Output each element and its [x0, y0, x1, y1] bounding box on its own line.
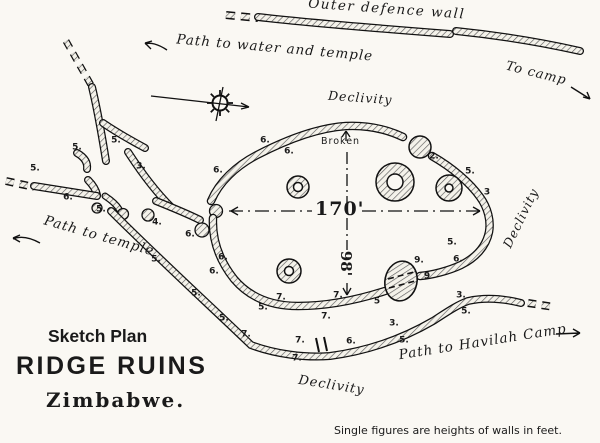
wall-height-label: 5.	[219, 315, 229, 324]
wall-height-label: 3.	[456, 292, 466, 301]
wall-height-label: 6.	[453, 256, 463, 265]
wall-height-label: 7.	[321, 313, 331, 322]
entrance-tick-marks	[316, 337, 327, 352]
wall-height-label: 5	[374, 298, 380, 307]
wall-height-label: 7.	[241, 331, 251, 340]
wall-height-label: 6.	[346, 338, 356, 347]
wall-height-label: 3.	[136, 163, 146, 172]
wall-height-label: 5.	[465, 168, 475, 177]
wall-height-label: 5.	[399, 337, 409, 346]
wall-height-label: 5.	[258, 304, 268, 313]
width-dimension-label: 170'	[315, 200, 364, 219]
wall-height-label: 4.	[152, 219, 162, 228]
path-to-temple-arrow	[13, 235, 40, 243]
wall-height-label: 5.	[72, 144, 82, 153]
wall-height-label: 5.	[461, 308, 471, 317]
wall-height-label: 7.	[295, 337, 305, 346]
compass-rose	[151, 87, 249, 121]
sketch-map: Outer defence wall Path to water and tem…	[0, 0, 600, 443]
height-dimension-label: 98'	[338, 251, 353, 276]
wall-height-label: 7.	[292, 355, 302, 364]
wall-height-label: 5.	[191, 290, 201, 299]
wall-height-label: 7.	[333, 292, 343, 301]
wall-height-label: 3	[484, 189, 490, 198]
wall-height-label: 3.	[389, 320, 399, 329]
broken-wall-label: Broken	[321, 137, 360, 147]
wall-height-label: 5.	[111, 137, 121, 146]
wall-height-label: 6.	[209, 268, 219, 277]
wall-height-label: 5.	[447, 239, 457, 248]
wall-height-label: 6.	[218, 254, 228, 263]
wall-height-label: 5.	[30, 165, 40, 174]
wall-height-label: 5.	[96, 206, 106, 215]
wall-height-label: 9.	[414, 257, 424, 266]
wall-height-label: 6.	[63, 194, 73, 203]
title-sketch-plan: Sketch Plan	[48, 328, 147, 346]
northeast-round-tower	[409, 136, 431, 158]
wall-height-label: 6.	[185, 231, 195, 240]
path-to-water-arrow	[145, 41, 167, 50]
wall-height-label: 7.	[276, 294, 286, 303]
footnote-legend: Single figures are heights of walls in f…	[334, 425, 562, 436]
wall-bump	[195, 223, 209, 237]
hut-circles	[277, 163, 462, 283]
wall-height-label: 6.	[213, 167, 223, 176]
wall-height-label: 2.	[429, 153, 439, 162]
wall-height-label: 5.	[151, 256, 161, 265]
title-zimbabwe: Zimbabwe.	[46, 390, 185, 410]
title-ridge-ruins: RIDGE RUINS	[16, 354, 207, 379]
to-camp-arrow	[571, 87, 590, 99]
wall-height-label: 6.	[284, 148, 294, 157]
wall-height-label: 9	[424, 273, 430, 282]
west-boundary-wall	[6, 181, 97, 196]
wall-height-label: 6.	[260, 137, 270, 146]
